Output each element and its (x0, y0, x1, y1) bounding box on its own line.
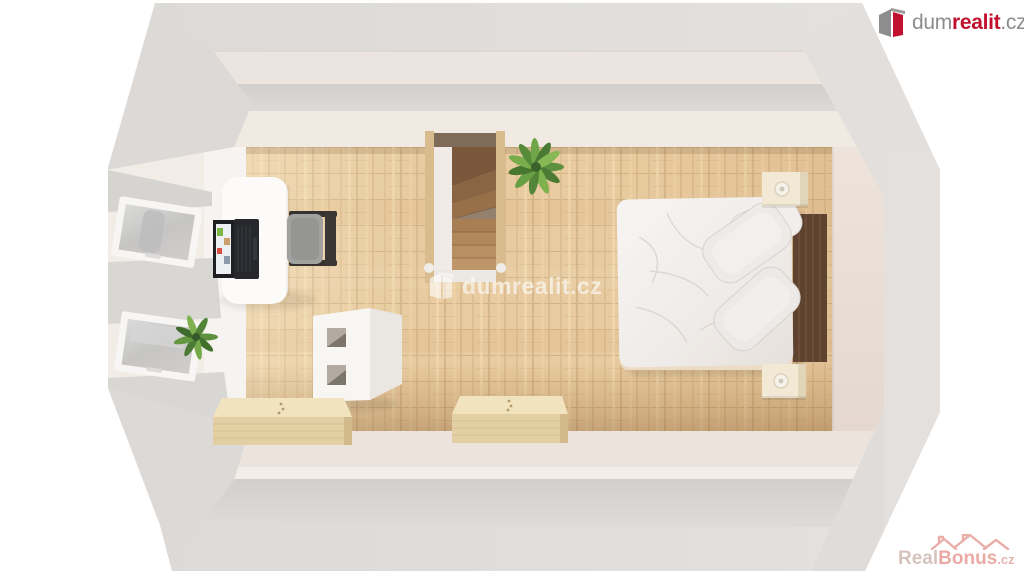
top-ledge-band (150, 84, 884, 111)
top-ceiling-band (150, 50, 884, 84)
realbonus-text: RealBonus.cz (898, 550, 1020, 569)
double-bed (617, 191, 827, 376)
cabinet-niche (327, 365, 346, 385)
realbonus-watermark: RealBonus.cz (898, 534, 1020, 569)
dumrealit-building-icon (876, 8, 906, 38)
bottom-kneewall-edge (180, 467, 884, 479)
watermark-text: dumrealit.cz (462, 273, 602, 300)
chair-backrest (325, 211, 336, 266)
stair-treads (452, 147, 496, 270)
realbonus-suffix: .cz (997, 552, 1014, 567)
realbonus-real: Real (898, 548, 938, 569)
right-outer-band (884, 150, 940, 576)
stair-post-left (425, 131, 434, 283)
dumrealit-logo: dumrealit.cz (876, 8, 1024, 38)
bottom-recess-band (180, 479, 884, 527)
staircase (424, 131, 506, 283)
floorplan-render: dumrealit.cz dumrealit.cz RealBonus.cz (0, 0, 1024, 576)
cabinet-niche (327, 328, 346, 347)
right-wall-face (832, 147, 884, 431)
dumrealit-watermark: dumrealit.cz (427, 272, 602, 300)
laptop (213, 219, 259, 279)
logo-suffix: .cz (1000, 11, 1024, 34)
logo-prefix: dum (912, 11, 952, 34)
wooden-chest-left (213, 398, 352, 445)
realbonus-bonus: Bonus (938, 548, 997, 569)
nightstand-top (762, 172, 808, 208)
wooden-chest-center (452, 396, 568, 443)
office-chair (287, 211, 337, 266)
dumrealit-logo-text: dumrealit.cz (912, 11, 1024, 35)
top-kneewall-band (150, 111, 884, 147)
nightstand-bottom (762, 364, 806, 400)
dumrealit-building-icon (427, 272, 455, 300)
logo-emphasis: realit (952, 11, 1000, 34)
stair-post-right (496, 131, 505, 283)
stairwell-sidewall (434, 147, 455, 272)
